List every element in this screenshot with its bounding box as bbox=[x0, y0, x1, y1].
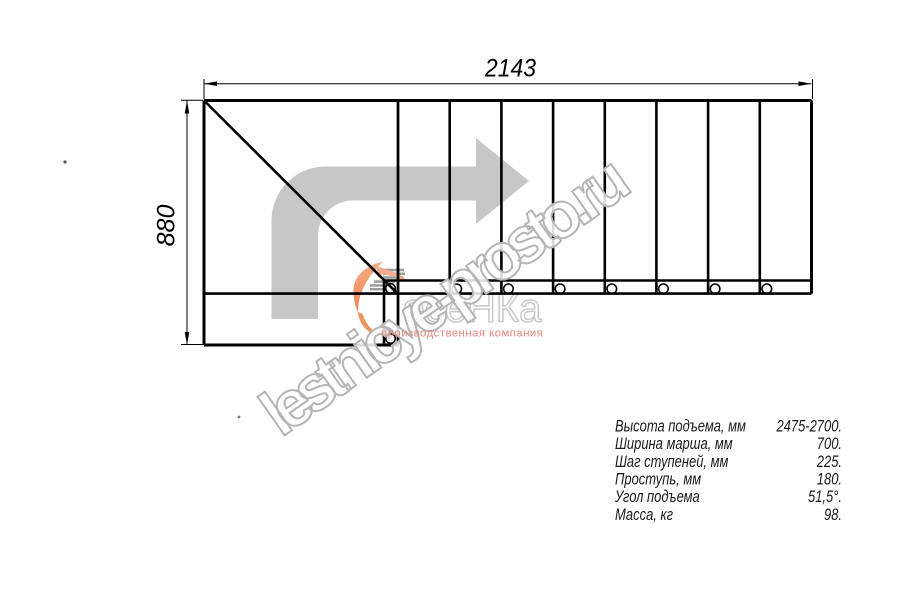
svg-text:производственная компания: производственная компания bbox=[381, 328, 543, 340]
svg-text:Масса, кг: Масса, кг bbox=[615, 507, 673, 525]
svg-text:180.: 180. bbox=[817, 471, 842, 489]
svg-text:2143: 2143 bbox=[484, 55, 537, 83]
svg-text:Проступь, мм: Проступь, мм bbox=[615, 471, 701, 489]
svg-text:51,5°.: 51,5°. bbox=[808, 489, 842, 507]
svg-text:2475-2700.: 2475-2700. bbox=[776, 418, 842, 436]
svg-text:700.: 700. bbox=[817, 436, 842, 454]
svg-text:98.: 98. bbox=[824, 507, 842, 525]
svg-text:225.: 225. bbox=[816, 454, 842, 472]
svg-text:Высота подъема, мм: Высота подъема, мм bbox=[615, 418, 746, 436]
svg-text:880: 880 bbox=[153, 205, 181, 247]
svg-text:Шаг ступеней, мм: Шаг ступеней, мм bbox=[615, 454, 728, 472]
svg-text:Угол подъема: Угол подъема bbox=[614, 489, 700, 507]
svg-text:Ширина марша, мм: Ширина марша, мм bbox=[615, 436, 733, 454]
